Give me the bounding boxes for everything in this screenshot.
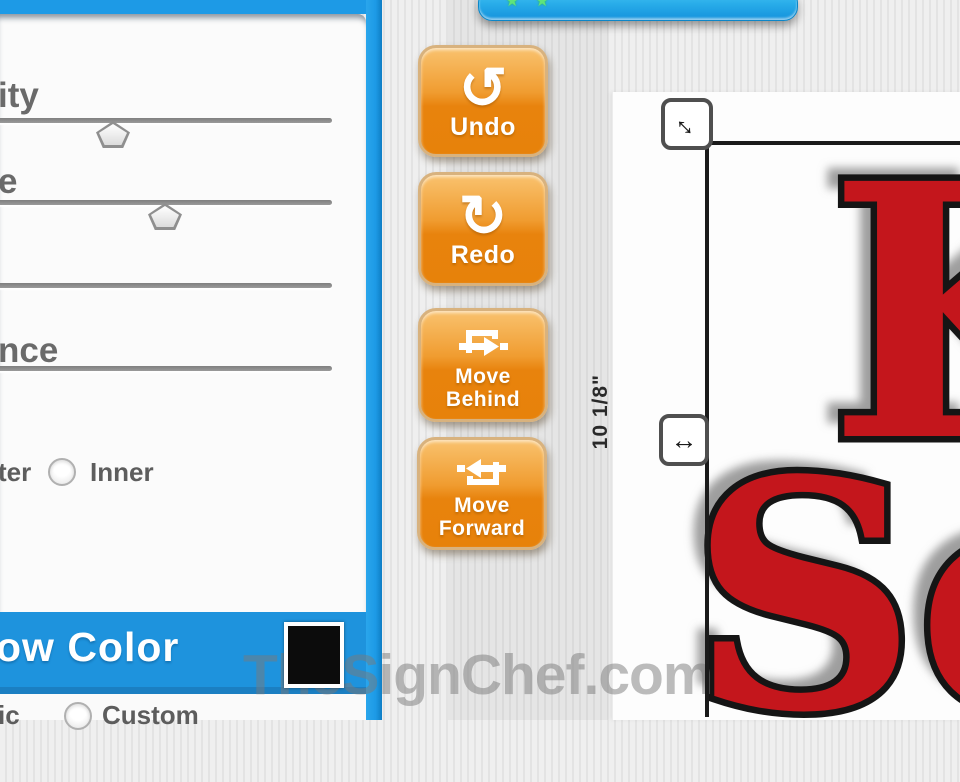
redo-button[interactable]: ↻ Redo bbox=[418, 172, 548, 286]
shadow-color-swatch[interactable] bbox=[284, 622, 344, 688]
redo-icon: ↻ bbox=[459, 190, 508, 244]
shadow-color-title: ow Color bbox=[0, 624, 179, 671]
outer-radio-label: ter bbox=[0, 457, 31, 488]
move-forward-icon bbox=[456, 456, 508, 488]
star-icon: ★ bbox=[505, 0, 519, 11]
distance-label: nce bbox=[0, 331, 58, 371]
panel-right-border bbox=[366, 0, 382, 720]
resize-horizontal-icon: ↔ bbox=[671, 427, 698, 454]
top-toolbar-tab: ★ ★ bbox=[478, 0, 798, 21]
size-label: e bbox=[0, 162, 17, 202]
opacity-slider-thumb[interactable] bbox=[96, 121, 130, 148]
height-dimension-label: 10 1/8" bbox=[589, 374, 613, 449]
custom-radio-label: Custom bbox=[102, 700, 199, 731]
resize-corner-handle[interactable]: ↔ bbox=[661, 98, 713, 150]
panel-top-border bbox=[0, 0, 382, 14]
selection-top-border bbox=[705, 141, 960, 145]
star-icon: ★ bbox=[535, 0, 549, 11]
move-behind-button[interactable]: Move Behind bbox=[418, 308, 548, 422]
undo-icon: ↺ bbox=[459, 62, 508, 116]
move-behind-icon bbox=[457, 327, 509, 359]
undo-button[interactable]: ↺ Undo bbox=[418, 45, 548, 157]
opacity-slider-track[interactable] bbox=[0, 118, 332, 123]
size-slider-thumb[interactable] bbox=[148, 203, 182, 230]
custom-radio[interactable] bbox=[64, 702, 92, 730]
resize-diagonal-icon: ↔ bbox=[668, 105, 706, 143]
slider3-track[interactable] bbox=[0, 283, 332, 288]
opacity-label: ity bbox=[0, 76, 39, 116]
basic-radio-label: ic bbox=[0, 700, 20, 731]
inner-radio-label: Inner bbox=[90, 457, 154, 488]
distance-slider-track[interactable] bbox=[0, 366, 332, 371]
inner-radio[interactable] bbox=[48, 458, 76, 486]
sign-text-line2[interactable]: Se Se bbox=[690, 440, 960, 755]
move-forward-button[interactable]: Move Forward bbox=[417, 437, 547, 550]
shadow-settings-panel: ity e nce ter Inner bbox=[0, 14, 366, 612]
resize-width-handle[interactable]: ↔ bbox=[659, 414, 709, 466]
